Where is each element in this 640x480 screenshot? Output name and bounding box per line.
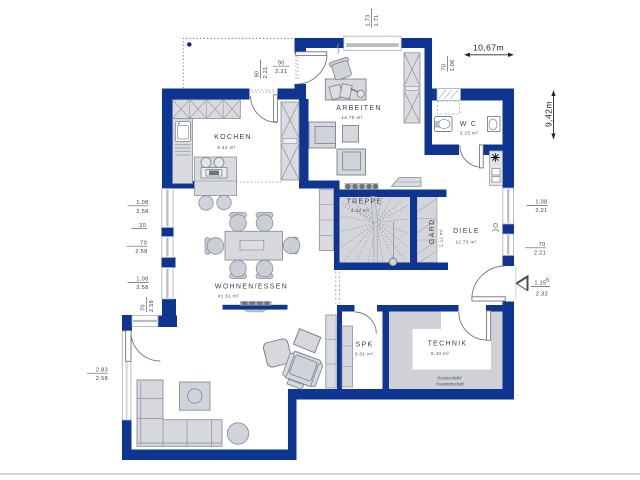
- svg-text:Hauswirtschaft: Hauswirtschaft: [436, 382, 464, 387]
- svg-text:12.73 m²: 12.73 m²: [455, 240, 476, 245]
- svg-text:2.58: 2.58: [136, 285, 148, 291]
- svg-text:1.06: 1.06: [450, 59, 456, 71]
- svg-text:41.61 m²: 41.61 m²: [218, 294, 239, 299]
- svg-text:70: 70: [442, 64, 448, 71]
- svg-text:1.73: 1.73: [366, 14, 372, 26]
- svg-text:90: 90: [255, 71, 261, 78]
- svg-text:TECHNIK: TECHNIK: [428, 341, 468, 348]
- svg-text:10,67m: 10,67m: [473, 43, 504, 53]
- svg-text:2.58: 2.58: [136, 209, 148, 215]
- svg-text:DIELE: DIELE: [453, 228, 480, 235]
- svg-text:1.08: 1.08: [535, 200, 547, 206]
- svg-text:30: 30: [139, 223, 146, 229]
- svg-text:2.58: 2.58: [149, 300, 155, 312]
- svg-text:2.21: 2.21: [263, 66, 269, 78]
- svg-text:KOCHEN: KOCHEN: [214, 134, 252, 141]
- svg-text:9,42m: 9,42m: [544, 101, 554, 127]
- svg-text:1.71: 1.71: [374, 14, 380, 26]
- svg-text:1.08: 1.08: [136, 277, 148, 283]
- svg-text:1.08: 1.08: [136, 200, 148, 206]
- svg-text:Haustechnik/: Haustechnik/: [437, 376, 462, 381]
- svg-text:4.43 m²: 4.43 m²: [351, 208, 369, 213]
- svg-text:2.58: 2.58: [96, 376, 108, 382]
- svg-text:2.58: 2.58: [135, 249, 147, 255]
- svg-text:2.21: 2.21: [535, 208, 547, 214]
- svg-text:S: S: [545, 278, 549, 284]
- svg-text:GARD: GARD: [429, 219, 436, 244]
- svg-text:70: 70: [140, 240, 147, 246]
- svg-text:9.44 m²: 9.44 m²: [217, 145, 235, 150]
- svg-text:3.01 m²: 3.01 m²: [355, 352, 373, 357]
- svg-text:2.32: 2.32: [536, 291, 548, 297]
- svg-text:ARBEITEN: ARBEITEN: [336, 105, 381, 112]
- svg-text:3.23 m²: 3.23 m²: [460, 131, 478, 136]
- svg-text:70: 70: [141, 304, 147, 311]
- svg-text:70: 70: [539, 242, 546, 248]
- svg-text:90: 90: [278, 60, 285, 66]
- svg-text:2.21: 2.21: [534, 251, 546, 257]
- svg-text:14.79 m²: 14.79 m²: [341, 115, 362, 120]
- svg-text:SPK: SPK: [356, 342, 374, 349]
- svg-text:W C: W C: [460, 121, 478, 128]
- svg-text:WOHNEN/ESSEN: WOHNEN/ESSEN: [215, 284, 288, 291]
- svg-text:8.40 m²: 8.40 m²: [431, 351, 449, 356]
- svg-text:2.83: 2.83: [96, 367, 108, 373]
- svg-text:2.21: 2.21: [275, 69, 287, 75]
- svg-text:2.11 m²: 2.11 m²: [439, 229, 444, 247]
- svg-text:TREPPE: TREPPE: [347, 199, 383, 206]
